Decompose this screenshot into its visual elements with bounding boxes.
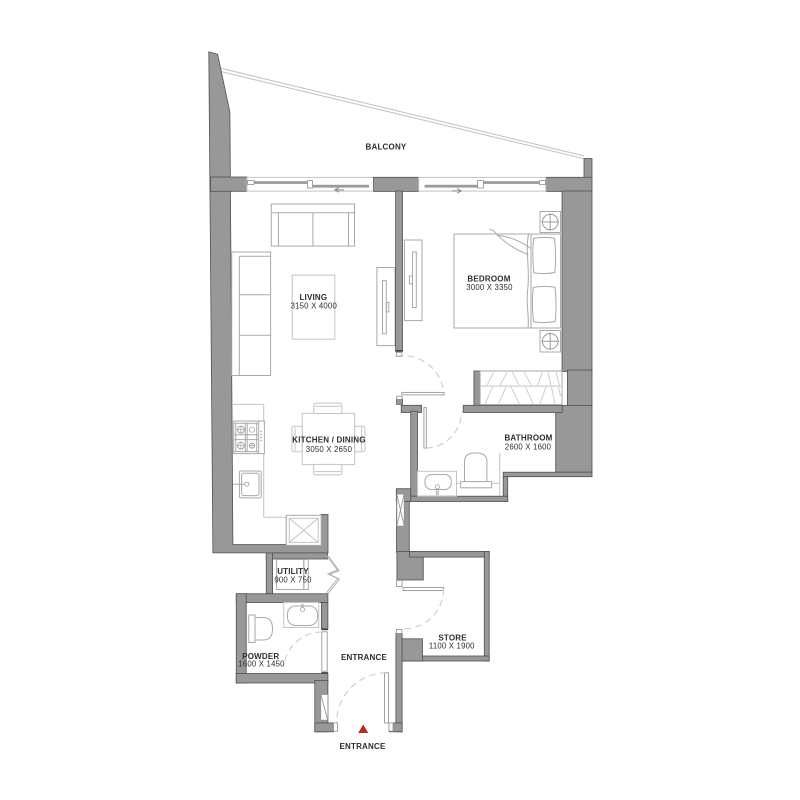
svg-text:1100 X 1900: 1100 X 1900 (429, 641, 475, 650)
svg-text:BATHROOM: BATHROOM (504, 433, 552, 442)
svg-text:1600 X 1450: 1600 X 1450 (238, 660, 285, 669)
svg-text:2600 X 1600: 2600 X 1600 (505, 443, 552, 452)
svg-text:3050 X 2650: 3050 X 2650 (306, 445, 353, 454)
svg-text:ENTRANCE: ENTRANCE (341, 653, 388, 662)
svg-text:KITCHEN / DINING: KITCHEN / DINING (292, 435, 365, 444)
svg-text:BALCONY: BALCONY (366, 143, 407, 152)
svg-text:UTILITY: UTILITY (277, 567, 309, 576)
svg-text:900 X 750: 900 X 750 (274, 576, 312, 585)
svg-text:3000 X 3350: 3000 X 3350 (466, 283, 513, 292)
svg-text:ENTRANCE: ENTRANCE (339, 742, 386, 751)
svg-text:BEDROOM: BEDROOM (467, 274, 510, 283)
svg-text:3150 X 4000: 3150 X 4000 (291, 301, 338, 310)
